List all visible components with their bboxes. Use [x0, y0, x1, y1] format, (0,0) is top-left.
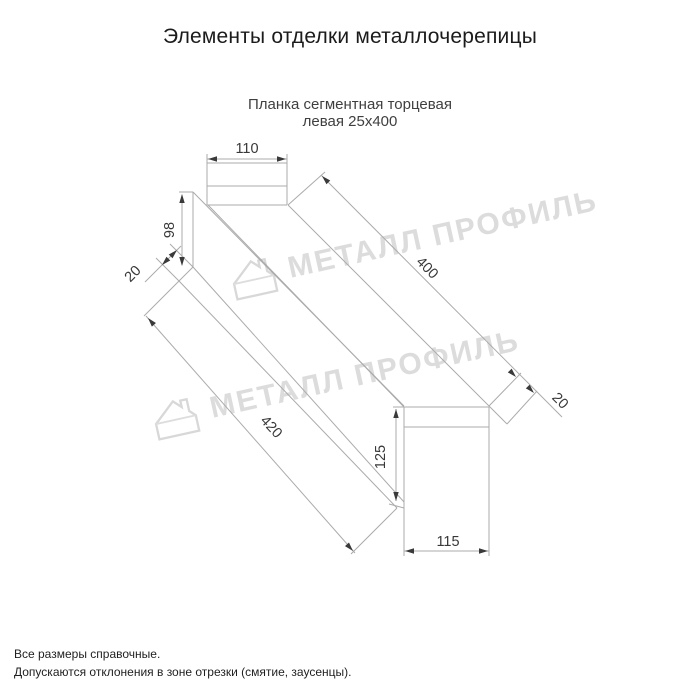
dimension-arrows: [146, 156, 536, 553]
footer-note-1: Все размеры справочные.: [14, 645, 351, 663]
dim-bottom-width-label: 115: [436, 534, 459, 550]
dim-right-height-label: 125: [373, 445, 389, 469]
footer-notes: Все размеры справочные. Допускаются откл…: [14, 645, 351, 681]
dim-bottom-length-label: 420: [257, 413, 285, 442]
dimension-labels: 110 98 20 400 20 420 125 115: [122, 141, 571, 550]
profile-outline: [179, 154, 537, 556]
dim-top-width-label: 110: [235, 141, 258, 157]
dim-right-flange-label: 20: [548, 390, 571, 413]
dim-top-length-label: 400: [413, 254, 441, 282]
technical-drawing: 110 98 20 400 20 420 125 115: [0, 0, 700, 700]
dimension-lines: [144, 159, 562, 554]
footer-note-2: Допускаются отклонения в зоне отрезки (с…: [14, 663, 351, 681]
dim-left-height-label: 98: [162, 222, 178, 238]
dim-left-flange-label: 20: [122, 263, 145, 286]
